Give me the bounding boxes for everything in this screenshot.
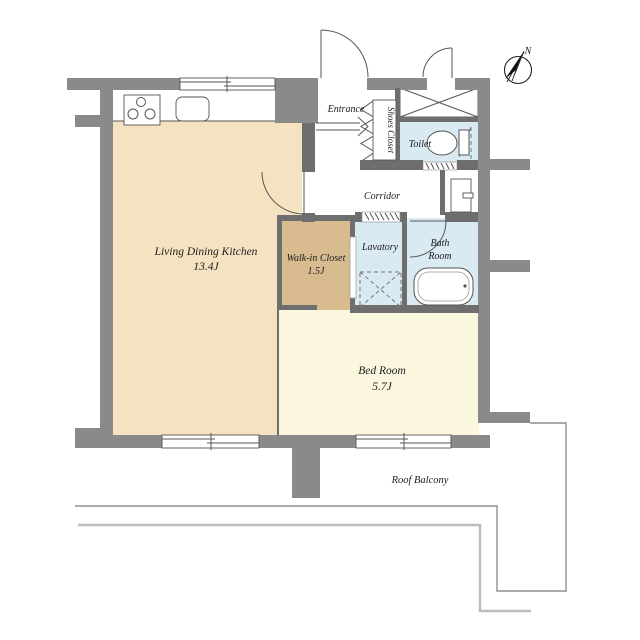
sink-icon xyxy=(176,97,209,121)
room-lavatory-floor xyxy=(355,218,402,308)
floor-plan: N Living Dining Kitchen 13.4J Walk-in Cl… xyxy=(0,0,640,640)
shoes-closet-label: Shoes Closet xyxy=(386,107,396,154)
bathroom-label-line2: Room xyxy=(427,251,451,262)
ldk-label: Living Dining Kitchen xyxy=(154,246,258,258)
water-heater-icon xyxy=(451,179,473,212)
window-ldk xyxy=(162,433,259,450)
balcony-outer-edge xyxy=(78,525,531,611)
lavatory-sliding-door xyxy=(362,212,400,222)
window-kitchen xyxy=(180,76,275,92)
bathroom-label-line1: Bath xyxy=(431,238,450,249)
walk-in-closet-label: Walk-in Closet xyxy=(287,253,346,264)
window-bedroom xyxy=(356,433,451,450)
ldk-size-label: 13.4J xyxy=(193,261,219,273)
floor-plan-canvas: N Living Dining Kitchen 13.4J Walk-in Cl… xyxy=(0,0,640,640)
entrance-door xyxy=(318,30,368,90)
entrance-label: Entrance xyxy=(327,104,365,115)
toilet-label: Toilet xyxy=(409,139,432,150)
lavatory-label: Lavatory xyxy=(361,242,399,253)
bedroom-label: Bed Room xyxy=(358,365,406,377)
roof-balcony-label: Roof Balcony xyxy=(391,475,449,486)
balcony-inner-edge xyxy=(75,423,566,591)
meter-box-door xyxy=(423,48,455,90)
corridor-label: Corridor xyxy=(364,191,400,202)
compass-label: N xyxy=(524,46,533,57)
toilet-threshold xyxy=(423,162,457,170)
bathtub-icon xyxy=(414,268,473,305)
meter-box-icon xyxy=(400,88,478,117)
bedroom-size-label: 5.7J xyxy=(372,381,392,393)
toilet-icon xyxy=(427,130,469,155)
walk-in-closet-size-label: 1.5J xyxy=(308,266,326,277)
